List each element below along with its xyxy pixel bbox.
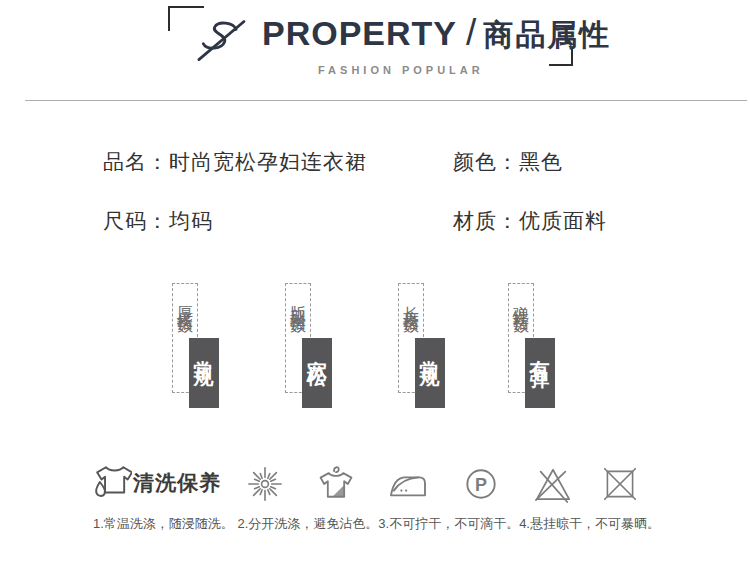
indicator-value: 有弹	[530, 344, 550, 408]
page-subtitle: FASHION POPULAR	[318, 64, 484, 76]
indicator-value-box: 宽松	[302, 338, 332, 408]
iron-two-dots-icon	[388, 461, 428, 507]
page-title-zh: 商品属性	[483, 15, 611, 56]
divider-line	[25, 100, 747, 101]
indicator-thickness: 厚度指数 常规	[172, 283, 232, 413]
brand-slashed-s-icon	[192, 18, 250, 64]
indicator-length: 长度指数 常规	[398, 283, 458, 413]
page-title: PROPERTY / 商品属性	[262, 12, 611, 56]
do-not-tumble-dry-icon	[600, 461, 640, 507]
attribute-label: 颜色：	[453, 150, 519, 173]
sunlight-burst-icon	[245, 461, 285, 507]
attribute-label: 品名：	[103, 150, 169, 173]
indicator-value: 常规	[194, 344, 214, 408]
tshirt-droplet-icon	[92, 461, 132, 503]
attribute-value: 时尚宽松孕妇连衣裙	[169, 150, 367, 173]
indicator-fit: 版型指数 宽松	[285, 283, 345, 413]
page-title-en: PROPERTY	[262, 14, 457, 53]
indicator-value: 常规	[420, 344, 440, 408]
hang-dry-shirt-icon	[316, 461, 356, 507]
indicator-elasticity: 弹性指数 有弹	[508, 283, 568, 413]
do-not-bleach-icon	[533, 461, 573, 507]
indicator-value-box: 有弹	[525, 338, 555, 408]
care-instructions: 1.常温洗涤，随浸随洗。 2.分开洗涤，避免沾色。3.不可拧干，不可滴干。4.悬…	[93, 515, 693, 533]
indicator-value-box: 常规	[189, 338, 219, 408]
indicator-value-box: 常规	[415, 338, 445, 408]
attribute-label: 尺码：	[103, 209, 169, 232]
professional-dryclean-p-icon: P	[461, 461, 501, 507]
attribute-label: 材质：	[453, 209, 519, 232]
attribute-material: 材质：优质面料	[453, 207, 607, 235]
product-property-page: PROPERTY / 商品属性 FASHION POPULAR 品名：时尚宽松孕…	[0, 0, 750, 561]
care-section-title: 清洗保养	[133, 469, 221, 497]
attribute-value: 优质面料	[519, 209, 607, 232]
attribute-color: 颜色：黑色	[453, 148, 563, 176]
attribute-value: 均码	[169, 209, 213, 232]
dryclean-letter: P	[475, 475, 487, 495]
indicator-value: 宽松	[307, 344, 327, 408]
attribute-product-name: 品名：时尚宽松孕妇连衣裙	[103, 148, 367, 176]
attribute-value: 黑色	[519, 150, 563, 173]
title-slash: /	[466, 12, 476, 54]
attribute-size: 尺码：均码	[103, 207, 213, 235]
